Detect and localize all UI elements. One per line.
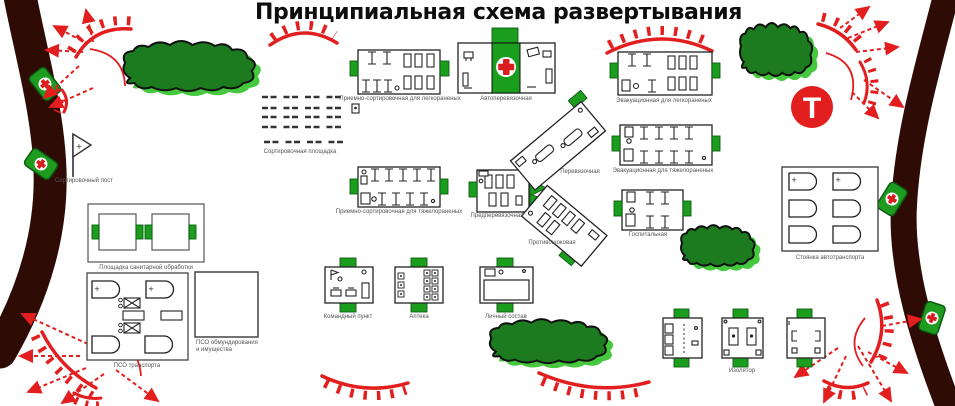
label-pso-equipment: ПСО обмундирования и имущества: [196, 340, 260, 354]
label-parking: Стоянка автотранспорта: [796, 255, 865, 262]
t-point-sign: Т: [791, 86, 833, 128]
vehicle-cross: +: [148, 285, 154, 293]
trench-arc-bottom-left-center: [322, 376, 408, 396]
label-reception-light: Приемно-сортировочная для легкораненых: [339, 96, 460, 103]
label-hospital: Госпитальная: [629, 232, 667, 239]
tree-top-left: [123, 41, 260, 96]
flag-cross: +: [76, 142, 83, 151]
label-auto-dressing: Автоперевязочная: [480, 96, 532, 103]
sanitary-processing-area: [88, 204, 204, 262]
pso-equipment-area: [195, 272, 258, 337]
label-pharmacy: Аптека: [409, 314, 428, 321]
building-evac-light: [610, 52, 720, 95]
tree-top-right: [740, 23, 818, 81]
label-isolator: Изолятор: [729, 368, 755, 375]
building-isolator: [722, 309, 763, 367]
label-evac-light: Эвакуационная для легкораненых: [616, 98, 712, 105]
label-evac-heavy: Эвакуационная для тяжелораненых: [613, 168, 714, 175]
label-sorting-post: Сортировочный пост: [55, 178, 113, 185]
building-pharmacy: [395, 258, 443, 312]
trench-arc-top-evac: [607, 30, 712, 53]
scheme-graphics: Т +: [0, 0, 955, 406]
vehicle-cross: +: [94, 285, 100, 293]
tree-mid-right: [681, 225, 760, 271]
trench-arc-bottom-right-center: [539, 373, 649, 396]
building-hospital: [614, 190, 691, 230]
trench-arc-top-center: [270, 25, 337, 45]
t-sign-letter: Т: [803, 92, 821, 125]
building-evac-heavy: [612, 125, 720, 165]
sorting-post-flag-icon: +: [73, 134, 91, 177]
label-reception-heavy: Приемно-сортировочная для тяжелораненых: [336, 209, 462, 216]
building-auto-dressing: [458, 28, 555, 93]
label-pso-transport: ПСО транспорта: [114, 363, 160, 370]
building-reception-light: [350, 50, 449, 94]
label-pre-dressing: Предперевязочная: [471, 213, 524, 220]
building-command-post: [325, 258, 373, 312]
building-personnel: [480, 258, 533, 312]
label-personnel: Личный состав: [485, 314, 527, 321]
label-sanitary-area: Площадка санитарной обработки: [99, 265, 193, 272]
label-antishock: Противошоковая: [528, 240, 575, 247]
sorting-area-rows: [262, 97, 359, 142]
road-right: [904, 0, 950, 406]
tree-bottom-center: [490, 319, 613, 368]
label-sorting-area: Сортировочная площадка: [264, 149, 337, 156]
vehicle-cross: +: [791, 176, 797, 184]
deployment-scheme: Т +: [0, 0, 955, 406]
diagram-title: Принципиальная схема развертывания: [0, 0, 955, 25]
pso-transport-area: + +: [87, 273, 188, 360]
building-unnamed-left: [663, 309, 702, 367]
label-dressing: Перевязочная: [560, 169, 600, 176]
label-command-post: Командный пункт: [324, 314, 373, 321]
building-unnamed-right: [787, 309, 825, 367]
vehicle-cross: +: [835, 176, 841, 184]
parking-area: + +: [782, 167, 878, 251]
building-reception-heavy: [350, 167, 448, 207]
